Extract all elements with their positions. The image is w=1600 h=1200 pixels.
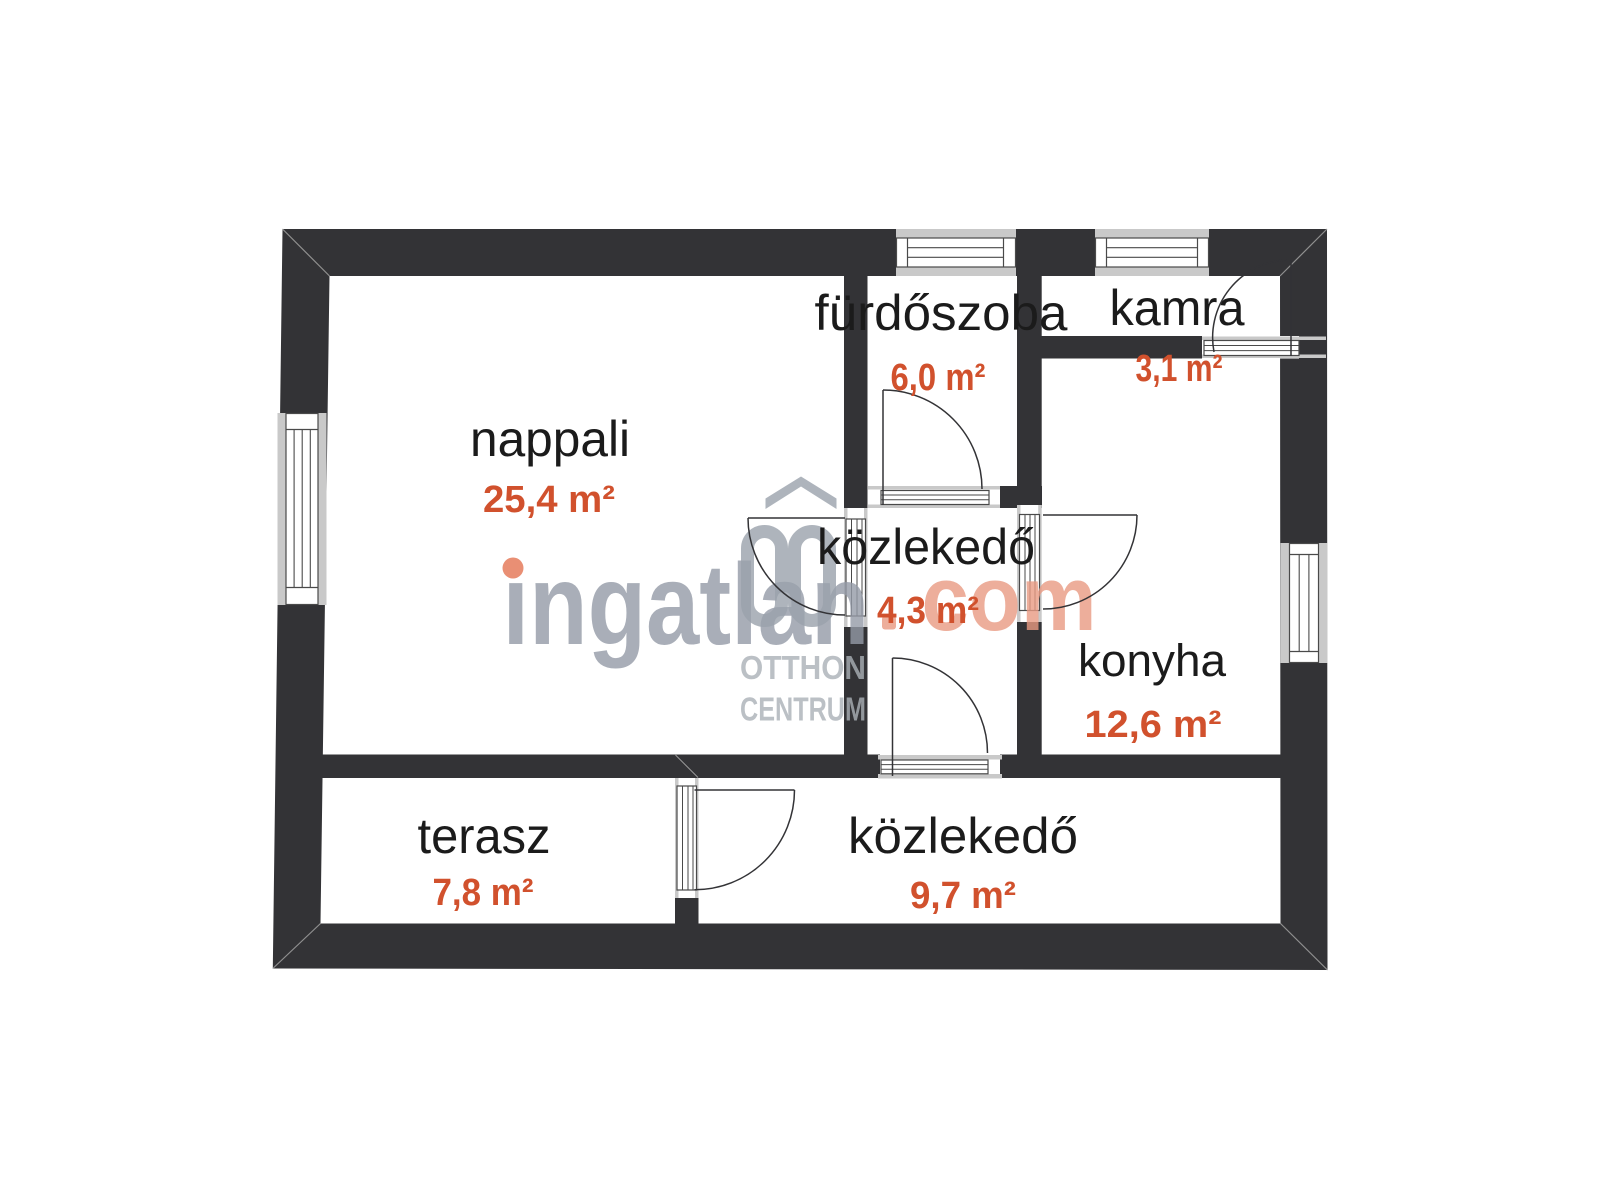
svg-text:CENTRUM: CENTRUM (740, 691, 866, 728)
svg-text:közlekedő: közlekedő (848, 808, 1078, 864)
svg-text:nappali: nappali (470, 411, 630, 467)
svg-text:3,1 m²: 3,1 m² (1136, 348, 1223, 390)
svg-text:OTTHON: OTTHON (740, 649, 866, 686)
svg-text:12,6 m²: 12,6 m² (1085, 704, 1222, 746)
svg-text:fürdőszoba: fürdőszoba (815, 285, 1068, 341)
svg-text:kamra: kamra (1110, 280, 1245, 336)
svg-text:7,8 m²: 7,8 m² (433, 872, 534, 914)
svg-text:konyha: konyha (1078, 635, 1227, 686)
svg-text:4,3 m²: 4,3 m² (877, 590, 979, 632)
svg-text:terasz: terasz (418, 808, 551, 864)
svg-text:közlekedő: közlekedő (817, 519, 1035, 575)
svg-text:6,0 m²: 6,0 m² (891, 357, 986, 399)
svg-text:9,7 m²: 9,7 m² (910, 875, 1016, 917)
svg-text:25,4 m²: 25,4 m² (483, 479, 615, 521)
